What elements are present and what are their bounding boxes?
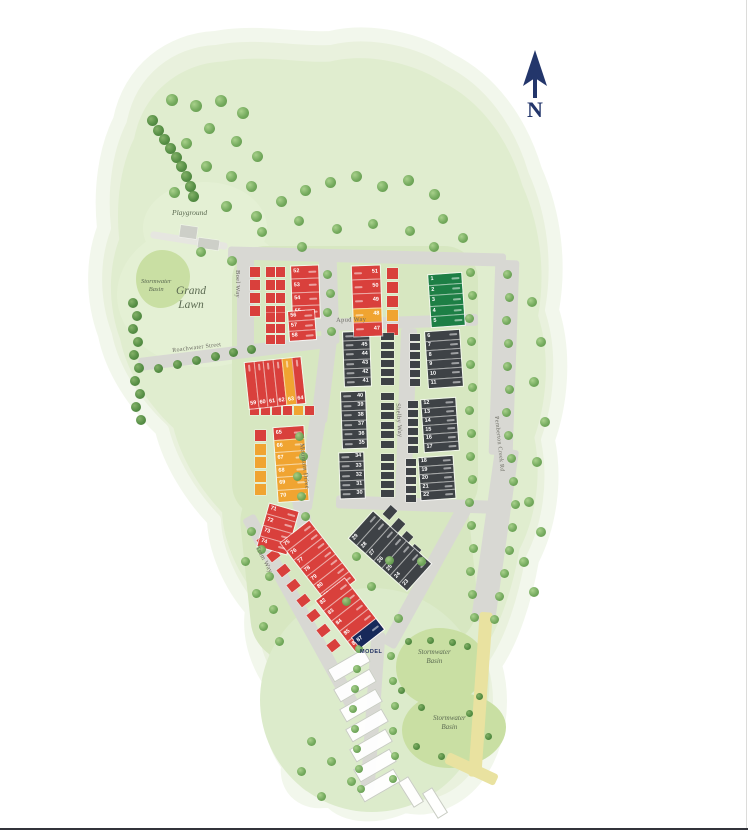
lot-area-text — [324, 551, 332, 558]
tree-icon — [495, 592, 504, 601]
tree-icon — [134, 363, 144, 373]
lot-number: 12 — [423, 401, 429, 407]
tree-icon — [466, 268, 475, 277]
lot-area-text — [446, 410, 454, 413]
tree-icon — [466, 567, 475, 576]
lot-41[interactable]: 41 — [345, 376, 371, 386]
small-lot — [387, 268, 398, 279]
tree-icon — [429, 242, 439, 252]
lot-area-text — [287, 513, 295, 517]
small-lot — [276, 280, 285, 290]
lot-area-text — [445, 485, 453, 488]
small-lot — [408, 446, 418, 453]
lot-number: 3 — [432, 298, 435, 304]
lot-area-text — [342, 475, 350, 477]
tree-icon — [367, 582, 376, 591]
lot-area-text — [309, 284, 317, 286]
tree-icon — [476, 693, 483, 700]
small-lot — [250, 267, 260, 277]
tree-icon — [135, 389, 145, 399]
lot-area-text — [277, 362, 280, 369]
lot-30[interactable]: 30 — [340, 488, 364, 498]
lot-area-text — [448, 436, 456, 439]
lot-number: 85 — [344, 629, 352, 637]
lot-52[interactable]: 52 — [291, 266, 318, 279]
lot-area-text — [267, 363, 270, 370]
lot-number: 64 — [297, 396, 304, 402]
tree-icon — [295, 432, 304, 441]
north-label: N — [527, 97, 543, 120]
small-lot — [387, 296, 398, 307]
tree-icon — [524, 497, 534, 507]
lot-area-text — [449, 333, 457, 336]
tree-icon — [173, 360, 182, 369]
lot-number: 61 — [269, 399, 276, 405]
lot-number: 50 — [372, 284, 378, 290]
tree-icon — [332, 224, 342, 234]
lot-area-text — [248, 364, 251, 371]
tree-icon — [351, 685, 359, 693]
bottom-border-line — [0, 828, 748, 830]
lot-17[interactable]: 17 — [424, 441, 459, 452]
tree-icon — [485, 733, 492, 740]
tree-icon — [469, 544, 478, 553]
lot-area-text — [444, 476, 452, 479]
lot-number: 59 — [250, 401, 257, 407]
tree-icon — [385, 556, 394, 565]
tree-icon — [252, 151, 263, 162]
tree-icon — [325, 177, 336, 188]
lot-area-text — [447, 427, 455, 430]
road-north-road — [228, 246, 506, 266]
lot-number: 42 — [362, 370, 368, 376]
lot-number: 58 — [292, 333, 298, 339]
lot-area-text — [354, 286, 362, 288]
lot-area-text — [364, 615, 372, 622]
small-lot — [406, 477, 416, 484]
tree-icon — [246, 181, 257, 192]
north-arrow-shaft — [533, 76, 537, 98]
lot-area-text — [451, 362, 459, 365]
lot-block-lots-47-51: 5150494847 — [352, 266, 382, 337]
small-lot — [406, 486, 416, 493]
lot-35[interactable]: 35 — [343, 438, 367, 448]
tree-icon — [352, 552, 361, 561]
road-mountain-drive-a — [311, 337, 337, 423]
lot-area-text — [342, 484, 350, 486]
lot-area-text — [317, 542, 325, 549]
lot-number: 41 — [363, 379, 369, 385]
lot-area-text — [452, 287, 460, 290]
label-stormwater-basin-south-label: Stormwater Basin — [433, 714, 466, 732]
tree-icon — [391, 702, 399, 710]
small-lot — [179, 225, 198, 239]
small-lot — [410, 334, 420, 341]
tree-icon — [413, 743, 420, 750]
tree-icon — [387, 652, 395, 660]
lot-area-text — [346, 354, 354, 356]
lot-area-text — [284, 524, 292, 528]
lot-area-text — [454, 309, 462, 312]
lot-area-text — [295, 360, 298, 367]
tree-icon — [438, 753, 445, 760]
lot-area-text — [304, 314, 312, 317]
lot-area-text — [337, 568, 345, 575]
lot-number: 66 — [277, 443, 283, 449]
small-lot — [305, 406, 314, 415]
tree-icon — [301, 512, 310, 521]
lot-area-text — [403, 546, 410, 553]
lot-number: 30 — [356, 491, 362, 497]
small-lot — [381, 378, 394, 385]
lot-area-text — [453, 381, 461, 384]
tree-icon — [507, 454, 516, 463]
small-lot — [250, 280, 260, 290]
tree-icon — [357, 785, 365, 793]
lot-number: 51 — [372, 269, 378, 275]
lot-50[interactable]: 50 — [352, 279, 380, 294]
tree-icon — [326, 289, 335, 298]
tree-icon — [532, 457, 542, 467]
tree-icon — [154, 364, 163, 373]
road-label-boel-way: Boel Way — [234, 270, 241, 298]
tree-icon — [465, 314, 474, 323]
tree-icon — [130, 376, 140, 386]
tree-icon — [508, 523, 517, 532]
lot-number: 56 — [290, 313, 296, 319]
tree-icon — [468, 291, 477, 300]
small-lot — [408, 419, 418, 426]
small-lot — [381, 342, 394, 349]
lot-area-text — [306, 334, 314, 337]
lot-area-text — [305, 324, 313, 327]
tree-icon — [181, 138, 192, 149]
lot-number: 35 — [359, 441, 365, 447]
lot-area-text — [286, 361, 289, 368]
tree-icon — [505, 546, 514, 555]
lot-number: 11 — [431, 381, 437, 387]
lot-area-text — [445, 401, 453, 404]
tree-icon — [500, 569, 509, 578]
small-lot — [266, 324, 275, 333]
tree-icon — [502, 316, 511, 325]
small-lot — [410, 379, 420, 386]
tree-icon — [503, 362, 512, 371]
tree-icon — [269, 605, 278, 614]
tree-icon — [511, 500, 520, 509]
small-lot — [381, 351, 394, 358]
future-lot — [398, 776, 424, 808]
tree-icon — [490, 615, 499, 624]
small-lot — [381, 441, 394, 448]
lot-area-text — [344, 433, 352, 435]
lot-area-text — [356, 329, 364, 331]
lot-number: 68 — [278, 468, 284, 474]
label-grand-lawn: Grand Lawn — [176, 284, 206, 313]
lot-number: 13 — [424, 410, 430, 416]
lot-number: 73 — [263, 528, 270, 535]
lot-area-text — [355, 300, 363, 302]
lot-number: 69 — [279, 480, 285, 486]
lot-number: 70 — [280, 493, 286, 499]
lot-54[interactable]: 54 — [292, 291, 319, 305]
tree-icon — [405, 226, 415, 236]
tree-icon — [536, 527, 546, 537]
lot-number: 67 — [277, 456, 283, 462]
tree-icon — [226, 171, 237, 182]
tree-icon — [389, 775, 397, 783]
lot-number: 65 — [276, 431, 282, 437]
tree-icon — [257, 227, 267, 237]
small-lot — [255, 471, 266, 482]
lot-area-text — [330, 559, 338, 566]
tree-icon — [468, 383, 477, 392]
small-lot — [381, 403, 394, 410]
tree-icon — [536, 337, 546, 347]
lot-area-text — [309, 297, 317, 299]
tree-icon — [176, 161, 187, 172]
tree-icon — [317, 792, 326, 801]
tree-icon — [351, 171, 362, 182]
tree-icon — [394, 614, 403, 623]
lot-block-lots-59-64: 596061626364 — [245, 357, 306, 409]
lot-number: 10 — [430, 371, 436, 377]
label-model-home: MODEL — [360, 649, 382, 655]
small-lot — [381, 463, 394, 470]
lot-51[interactable]: 51 — [352, 266, 380, 280]
tree-icon — [465, 406, 474, 415]
tree-icon — [252, 589, 261, 598]
lot-number: 18 — [421, 459, 427, 465]
lot-area-text — [369, 516, 376, 523]
small-lot — [276, 293, 285, 303]
lot-area-text — [343, 493, 351, 495]
lot-area-text — [346, 372, 354, 374]
tree-icon — [131, 402, 141, 412]
tree-icon — [196, 247, 206, 257]
tree-icon — [458, 233, 468, 243]
lot-area-text — [344, 414, 352, 416]
lot-area-text — [395, 538, 402, 545]
small-lot — [381, 454, 394, 461]
lot-area-text — [443, 467, 451, 470]
small-lot — [250, 293, 260, 303]
small-lot — [276, 335, 285, 344]
lot-area-text — [345, 443, 353, 445]
label-stormwater-basin-west-label: Stormwater Basin — [141, 278, 171, 294]
lot-area-text — [345, 344, 353, 346]
small-lot — [381, 333, 394, 340]
small-lot — [255, 457, 266, 468]
lot-number: 39 — [357, 403, 363, 409]
tree-icon — [467, 337, 476, 346]
small-lot — [266, 335, 275, 344]
lot-area-text — [386, 531, 393, 538]
lot-number: 83 — [328, 609, 336, 617]
lot-number: 38 — [358, 412, 364, 418]
lot-number: 14 — [425, 418, 431, 424]
lot-number: 72 — [266, 517, 273, 524]
lot-area-text — [341, 456, 349, 458]
small-lot — [381, 490, 394, 497]
lot-47[interactable]: 47 — [354, 321, 382, 336]
lot-11[interactable]: 11 — [428, 376, 463, 388]
small-lot — [250, 306, 260, 316]
tree-icon — [417, 557, 426, 566]
lot-number: 82 — [320, 598, 328, 606]
lot-block-lots-41-46: 464544434241 — [343, 332, 371, 387]
lot-block-lots-1-5: 12345 — [428, 273, 465, 327]
tree-icon — [297, 242, 307, 252]
tree-icon — [465, 498, 474, 507]
lot-area-text — [347, 381, 355, 383]
tree-icon — [418, 704, 425, 711]
lot-number: 84 — [336, 619, 344, 627]
lot-area-text — [453, 298, 461, 301]
tree-icon — [529, 377, 539, 387]
tree-icon — [377, 181, 388, 192]
tree-icon — [307, 737, 316, 746]
lot-area-text — [304, 525, 312, 532]
tree-icon — [470, 613, 479, 622]
tree-icon — [351, 725, 359, 733]
small-lot — [381, 481, 394, 488]
small-lot — [408, 401, 418, 408]
tree-icon — [136, 415, 146, 425]
lot-number: 17 — [426, 445, 432, 451]
lot-number: 44 — [362, 351, 368, 357]
tree-icon — [504, 431, 513, 440]
future-lot — [422, 787, 448, 819]
tree-icon — [468, 475, 477, 484]
small-lot — [410, 370, 420, 377]
lot-area-text — [342, 465, 350, 467]
lot-number: 43 — [362, 360, 368, 366]
small-lot — [406, 468, 416, 475]
lot-area-text — [310, 534, 318, 541]
lot-number: 19 — [421, 467, 427, 473]
tree-icon — [467, 429, 476, 438]
tree-icon — [181, 171, 192, 182]
tree-icon — [237, 107, 249, 119]
tree-icon — [128, 298, 138, 308]
lot-number: 54 — [294, 296, 300, 302]
lot-58[interactable]: 58 — [289, 329, 316, 341]
lot-area-text — [448, 445, 456, 448]
lot-number: 36 — [358, 431, 364, 437]
tree-icon — [241, 557, 250, 566]
tree-icon — [468, 590, 477, 599]
lot-number: 9 — [429, 362, 432, 368]
small-lot — [410, 343, 420, 350]
tree-icon — [251, 211, 262, 222]
small-lot — [410, 352, 420, 359]
lot-5[interactable]: 5 — [431, 314, 465, 327]
tree-icon — [449, 639, 456, 646]
lot-53[interactable]: 53 — [292, 278, 319, 292]
small-lot — [266, 313, 275, 322]
lot-number: 40 — [357, 393, 363, 399]
lot-number: 5 — [433, 319, 436, 325]
small-lot — [408, 410, 418, 417]
tree-icon — [275, 637, 284, 646]
lot-number: 32 — [356, 472, 362, 478]
tree-icon — [368, 219, 378, 229]
tree-icon — [169, 187, 180, 198]
lot-number: 7 — [428, 343, 431, 349]
small-lot — [406, 459, 416, 466]
lot-block-lots-30-34: 3433323130 — [339, 453, 365, 499]
lot-number: 37 — [358, 422, 364, 428]
small-lot — [294, 406, 303, 415]
tree-icon — [323, 308, 332, 317]
lot-49[interactable]: 49 — [353, 293, 381, 308]
tree-icon — [509, 477, 518, 486]
lot-block-lots-56-58: 565758 — [288, 310, 316, 341]
lot-number: 2 — [431, 287, 434, 293]
lot-area-text — [343, 405, 351, 407]
tree-icon — [327, 327, 336, 336]
tree-icon — [438, 214, 448, 224]
tree-icon — [185, 181, 196, 192]
tree-icon — [247, 527, 256, 536]
tree-icon — [294, 216, 304, 226]
road-label-apud-way: Apud Way — [336, 316, 366, 324]
lot-area-text — [378, 523, 385, 530]
lot-number: 6 — [427, 333, 430, 339]
tree-icon — [519, 557, 529, 567]
lot-area-text — [356, 604, 364, 611]
lot-area-text — [452, 371, 460, 374]
lot-number: 62 — [278, 398, 285, 404]
lot-area-text — [340, 584, 348, 591]
tree-icon — [327, 757, 336, 766]
tree-icon — [132, 311, 142, 321]
tree-icon — [503, 270, 512, 279]
tree-icon — [391, 752, 399, 760]
lot-number: 1 — [430, 277, 433, 283]
lot-area-text — [451, 352, 459, 355]
small-lot — [381, 360, 394, 367]
lot-number: 52 — [293, 270, 299, 276]
lot-number: 71 — [269, 507, 276, 514]
tree-icon — [247, 345, 256, 354]
small-lot — [387, 310, 398, 321]
tree-icon — [133, 337, 143, 347]
tree-icon — [215, 95, 227, 107]
tree-icon — [347, 777, 356, 786]
lot-number: 53 — [294, 283, 300, 289]
tree-icon — [349, 705, 357, 713]
lot-number: 33 — [355, 463, 361, 469]
lot-area-text — [343, 395, 351, 397]
small-lot — [406, 495, 416, 502]
tree-icon — [540, 417, 550, 427]
small-lot — [283, 406, 292, 415]
tree-icon — [129, 350, 139, 360]
small-lot — [255, 444, 266, 455]
small-lot — [255, 430, 266, 441]
lot-area-text — [345, 335, 353, 337]
tree-icon — [403, 175, 414, 186]
lot-area-text — [344, 424, 352, 426]
tree-icon — [297, 492, 306, 501]
lot-number: 31 — [356, 482, 362, 488]
lot-number: 16 — [426, 436, 432, 442]
tree-icon — [427, 637, 434, 644]
lot-number: 45 — [361, 342, 367, 348]
site-map: Boel WayMountain DriveRoachwater StreetA… — [0, 0, 748, 835]
